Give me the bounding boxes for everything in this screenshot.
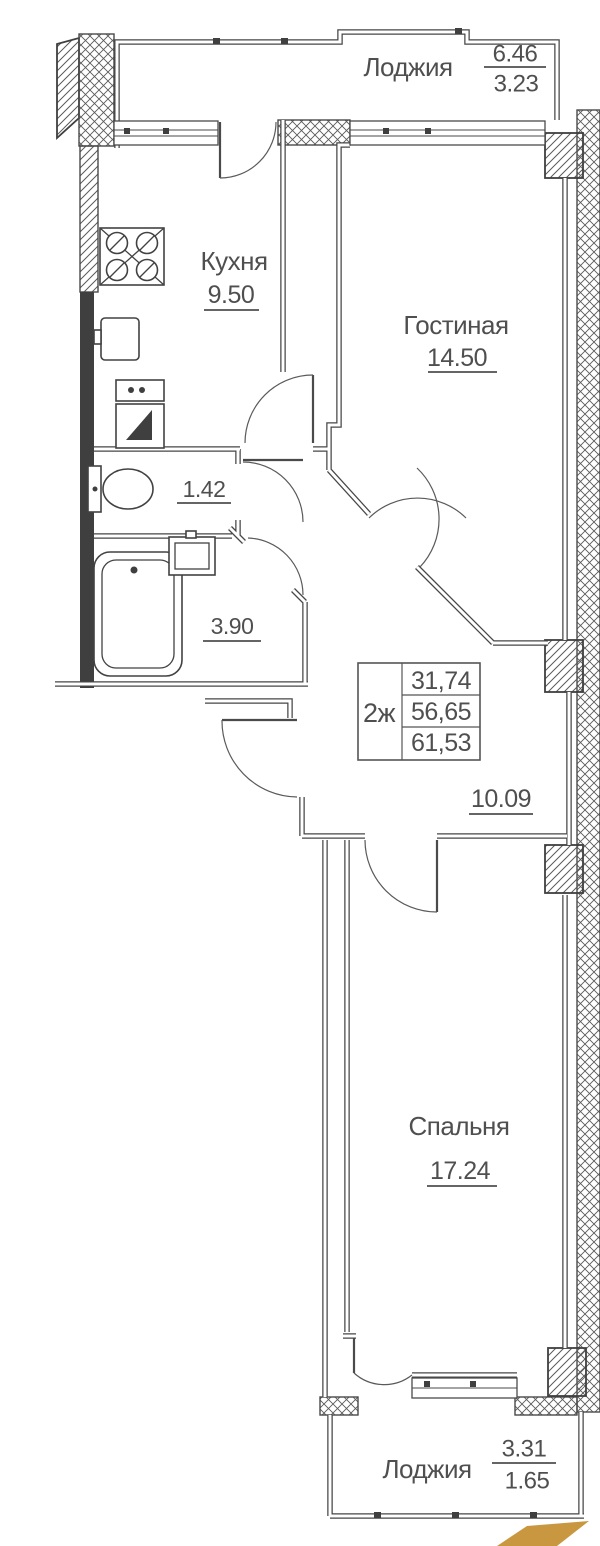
unit-area: 56,65	[411, 698, 471, 726]
loggia-top-label: Лоджия	[363, 52, 452, 82]
wc-area: 1.42	[183, 476, 226, 502]
living-door-arc-1	[369, 498, 466, 518]
kitchen-label: Кухня	[200, 246, 267, 276]
neighbor-wall-stub	[57, 38, 79, 138]
entry-door-arc	[222, 720, 297, 797]
hallway-area: 10.09	[471, 785, 531, 813]
living-room-label: Гостиная	[403, 310, 508, 340]
unit-total-area: 61,53	[411, 729, 471, 757]
kitchen-sink-icon	[94, 318, 139, 360]
living-door-arc-2	[417, 468, 439, 567]
bathroom-door-arc	[248, 538, 303, 595]
wall-ticks	[124, 28, 537, 1518]
loggia-bottom-area-reduced: 1.65	[505, 1468, 550, 1495]
washing-machine-icon	[116, 380, 164, 448]
unit-type-label: 2ж	[363, 698, 396, 728]
room-labels: Лоджия 6.46 3.23 Кухня 9.50 Гостиная 14.…	[177, 41, 556, 1495]
pier-living-top	[545, 133, 583, 178]
unit-info-box: 2ж 31,74 56,65 61,53	[358, 663, 480, 760]
kitchen-area: 9.50	[208, 281, 255, 309]
wall-segment-loggia-left	[320, 1397, 358, 1415]
developer-logo	[497, 1521, 589, 1546]
living-window	[350, 121, 545, 145]
loggia-top-area-total: 6.46	[493, 41, 538, 68]
wall-segment-top	[278, 120, 350, 145]
bedroom-label: Спальня	[409, 1111, 510, 1141]
wash-basin-icon	[169, 531, 215, 575]
corner-block-top-left	[79, 34, 114, 146]
loggia-bottom-label: Лоджия	[382, 1454, 471, 1484]
loggia-bottom-area-total: 3.31	[502, 1436, 547, 1463]
exterior-wall-right	[577, 110, 600, 1412]
kitchen-door-arc	[245, 375, 313, 443]
bedroom-loggia-door-arc	[354, 1373, 412, 1385]
living-room-area: 14.50	[427, 344, 487, 372]
loggia-top-area-reduced: 3.23	[494, 71, 539, 98]
kitchen-loggia-door-arc	[220, 122, 276, 178]
unit-living-area: 31,74	[411, 667, 472, 695]
wc-door-arc	[243, 462, 303, 522]
vent-shaft-left	[80, 146, 98, 292]
bedroom-door-arc	[365, 840, 437, 912]
bedroom-area: 17.24	[430, 1157, 491, 1185]
bathroom-area: 3.90	[211, 613, 254, 639]
wall-segment-loggia-right	[515, 1397, 577, 1415]
floor-plan: 2ж 31,74 56,65 61,53 Лоджия 6.46 3.23 Ку…	[0, 0, 600, 1546]
pier-bedroom-top	[545, 845, 583, 893]
toilet-icon	[88, 466, 153, 512]
pier-living-bottom	[545, 640, 583, 692]
stove-icon	[100, 228, 164, 285]
pier-bedroom-bottom	[548, 1348, 586, 1396]
floor-plan-page: 2ж 31,74 56,65 61,53 Лоджия 6.46 3.23 Ку…	[0, 0, 600, 1546]
